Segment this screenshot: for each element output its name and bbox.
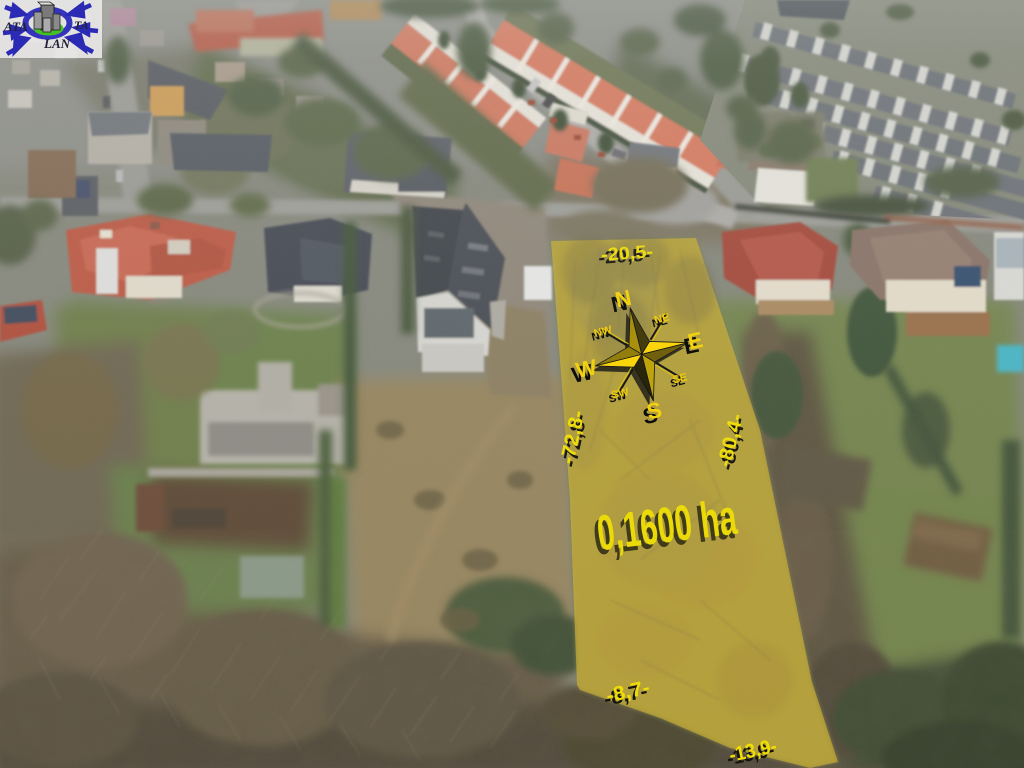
svg-text:TA: TA xyxy=(74,18,89,32)
svg-text:LAN: LAN xyxy=(43,36,71,51)
svg-text:ATA: ATA xyxy=(3,19,28,34)
